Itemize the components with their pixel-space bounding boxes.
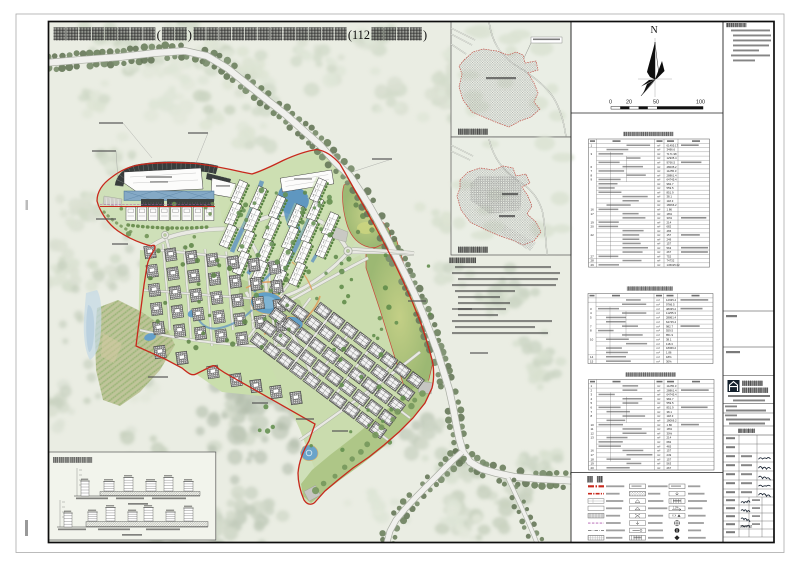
- svg-text:m²: m²: [657, 466, 660, 470]
- svg-text:14: 14: [590, 355, 594, 359]
- svg-text:48035.2: 48035.2: [666, 307, 677, 311]
- svg-text:9766.5: 9766.5: [666, 302, 675, 306]
- svg-text:1.3%: 1.3%: [673, 507, 679, 510]
- svg-text:18066.2: 18066.2: [666, 346, 677, 350]
- svg-text:559.5: 559.5: [666, 329, 673, 333]
- svg-text:m²: m²: [657, 346, 660, 350]
- svg-text:m²: m²: [657, 355, 660, 359]
- svg-text:30%: 30%: [666, 359, 672, 363]
- svg-text:m²: m²: [657, 324, 660, 328]
- svg-text:(112: (112: [348, 28, 370, 42]
- svg-text:2020.02: 2020.02: [740, 525, 752, 529]
- svg-text:38.1: 38.1: [667, 410, 673, 414]
- svg-text:m²: m²: [657, 263, 660, 267]
- svg-text:N: N: [651, 25, 658, 36]
- svg-text:38.1: 38.1: [666, 337, 672, 341]
- svg-text:18%: 18%: [666, 355, 672, 359]
- svg-text:100: 100: [696, 100, 705, 106]
- svg-text:X.X: X.X: [672, 514, 676, 518]
- svg-text:): ): [188, 28, 192, 42]
- svg-text:118.3: 118.3: [666, 342, 673, 346]
- svg-text:145025.02: 145025.02: [667, 263, 681, 267]
- svg-text:0: 0: [609, 100, 612, 106]
- svg-text:20: 20: [591, 225, 595, 229]
- svg-text:m²: m²: [657, 359, 660, 363]
- svg-text:20: 20: [591, 466, 595, 470]
- svg-text:m²: m²: [657, 329, 660, 333]
- svg-text:22: 22: [591, 233, 595, 237]
- svg-text:m²: m²: [657, 337, 660, 341]
- svg-text:m²: m²: [657, 342, 660, 346]
- svg-text:17: 17: [591, 212, 595, 216]
- svg-text:m²: m²: [657, 311, 660, 315]
- svg-text:982.7: 982.7: [666, 324, 673, 328]
- svg-text:249: 249: [667, 453, 672, 457]
- svg-text:29: 29: [591, 263, 595, 267]
- svg-text:(: (: [157, 28, 161, 42]
- svg-text:17: 17: [591, 453, 595, 457]
- svg-text:20: 20: [626, 100, 632, 106]
- svg-text:10: 10: [590, 337, 594, 341]
- svg-text:267: 267: [667, 466, 672, 470]
- svg-text:m²: m²: [657, 302, 660, 306]
- svg-text:m²: m²: [657, 453, 660, 457]
- svg-text:m²: m²: [657, 307, 660, 311]
- svg-text:): ): [423, 28, 427, 42]
- svg-text:50: 50: [653, 100, 659, 106]
- svg-text:11255.3: 11255.3: [666, 311, 676, 315]
- svg-text:m²: m²: [657, 320, 660, 324]
- svg-text:15: 15: [590, 359, 594, 363]
- svg-text:13: 13: [591, 436, 595, 440]
- svg-text:m²: m²: [657, 410, 660, 414]
- svg-text:64745.4: 64745.4: [666, 320, 677, 324]
